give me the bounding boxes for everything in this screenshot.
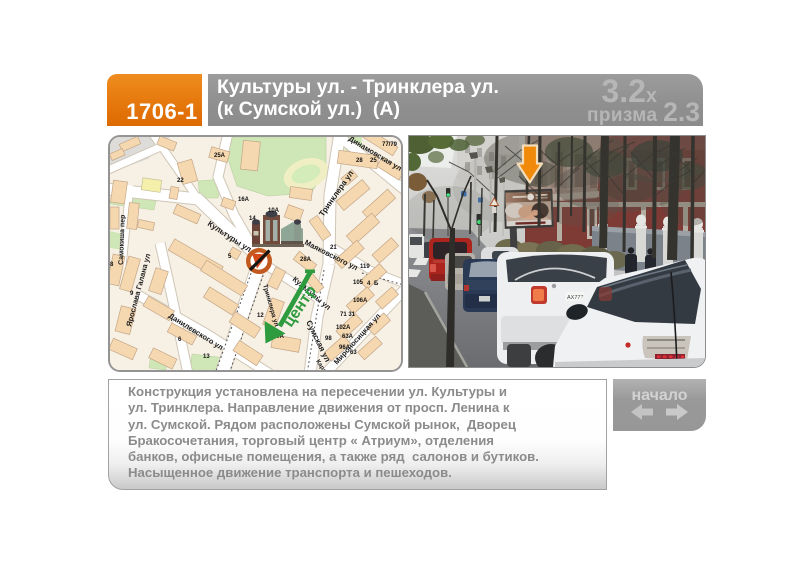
svg-text:63: 63 — [350, 350, 357, 356]
svg-text:22: 22 — [177, 178, 184, 184]
svg-text:63А: 63А — [342, 334, 354, 340]
svg-text:21: 21 — [330, 245, 337, 251]
svg-text:96А: 96А — [339, 345, 351, 351]
svg-text:16А: 16А — [238, 197, 250, 203]
svg-text:98: 98 — [325, 336, 332, 342]
svg-text:106А: 106А — [353, 298, 368, 304]
svg-text:105: 105 — [353, 280, 364, 286]
svg-text:119: 119 — [360, 264, 370, 270]
svg-text:14: 14 — [249, 216, 256, 222]
svg-text:25: 25 — [370, 158, 377, 164]
svg-text:13: 13 — [203, 354, 210, 360]
svg-text:25А: 25А — [214, 153, 226, 159]
svg-text:28: 28 — [356, 158, 363, 164]
svg-text:10А: 10А — [268, 208, 280, 214]
svg-text:Б: Б — [374, 281, 379, 287]
svg-text:71 31: 71 31 — [340, 312, 356, 318]
svg-text:28А: 28А — [300, 257, 312, 263]
svg-text:102А: 102А — [336, 325, 351, 331]
svg-text:77/79: 77/79 — [382, 142, 398, 148]
svg-text:12: 12 — [257, 313, 264, 319]
